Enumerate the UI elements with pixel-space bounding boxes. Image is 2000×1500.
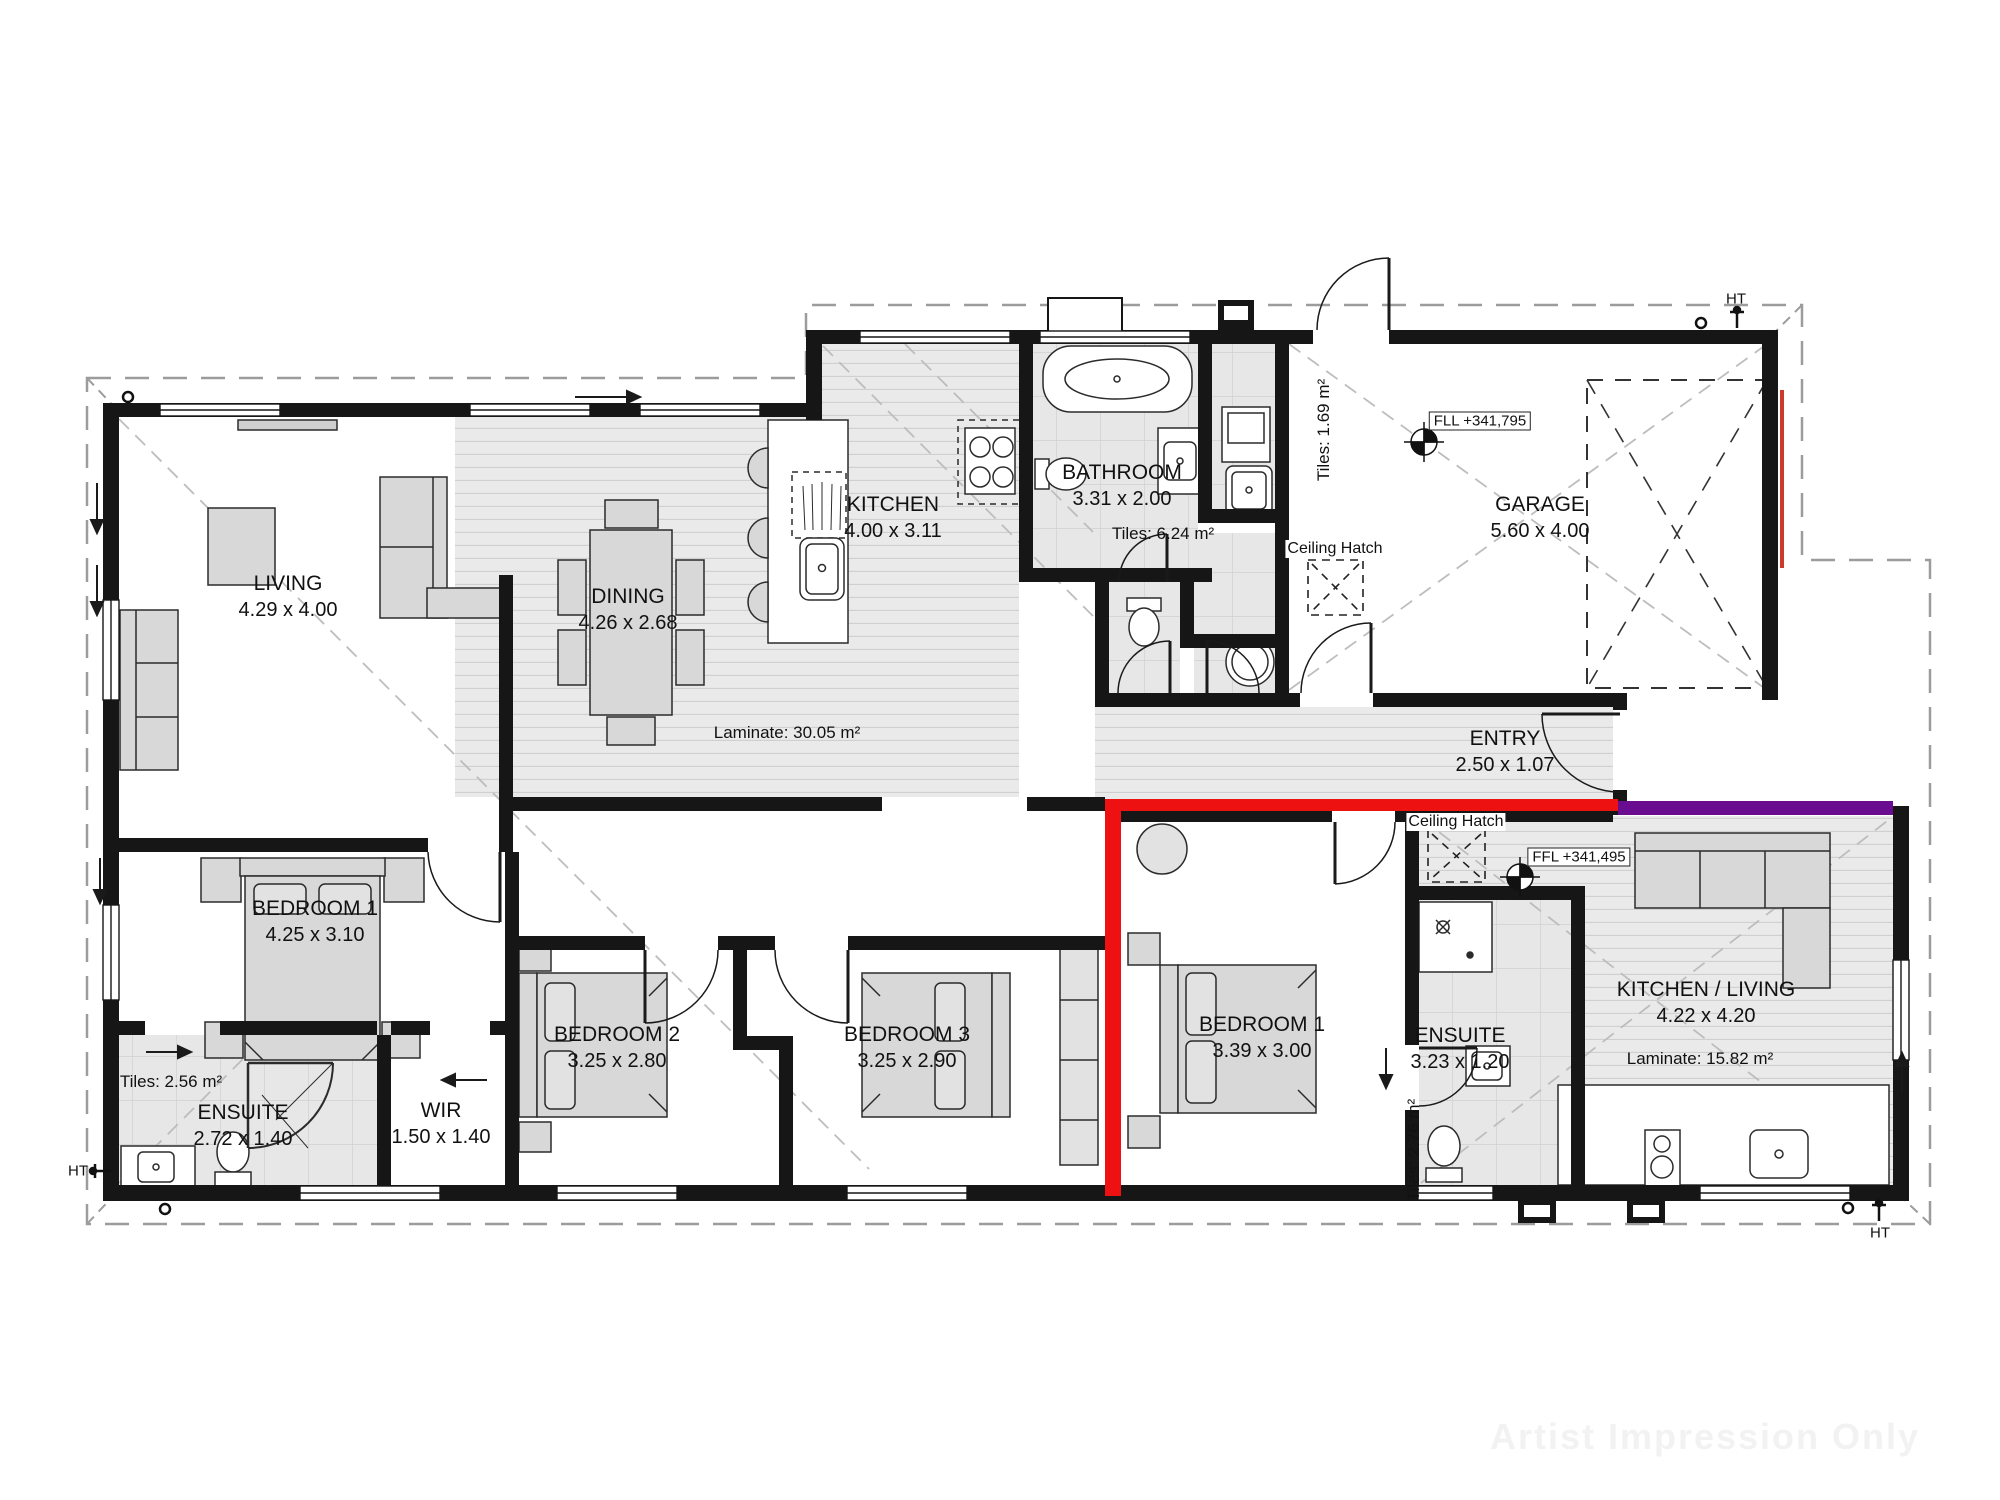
- room-name: GARAGE: [1491, 492, 1590, 518]
- window: [1893, 960, 1909, 1060]
- room-name: ENTRY: [1456, 726, 1555, 752]
- window: [160, 404, 280, 416]
- room-name: BEDROOM 2: [554, 1022, 680, 1048]
- arrow-down-ensuite-flat: [1380, 1048, 1392, 1088]
- hose-tap-icon: [1730, 307, 1744, 328]
- room-label-bedroom1-flat: BEDROOM 1 3.39 x 3.00: [1199, 1012, 1325, 1064]
- door-bedroom3: [775, 950, 848, 1023]
- room-name: KITCHEN / LIVING: [1617, 977, 1796, 1003]
- room-name: BEDROOM 3: [844, 1022, 970, 1048]
- room-dims: 4.25 x 3.10: [252, 922, 378, 948]
- ceiling-hatch-garage: [1308, 560, 1363, 615]
- bath-nook-cabinet: [1048, 298, 1122, 332]
- room-dims: 3.23 x 1.20: [1411, 1049, 1510, 1075]
- window: [470, 404, 590, 416]
- room-name: ENSUITE: [194, 1100, 293, 1126]
- room-label-ensuite-main: ENSUITE 2.72 x 1.40: [194, 1100, 293, 1152]
- room-label-living: LIVING 4.29 x 4.00: [239, 571, 338, 623]
- level-label-garage: FLL +341,795: [1429, 412, 1531, 431]
- arrow-left-wir: [442, 1074, 487, 1086]
- room-dims: 3.25 x 2.90: [844, 1048, 970, 1074]
- room-label-dining: DINING 4.26 x 2.68: [579, 584, 678, 636]
- area-label-tiles-ensuite-flat: Tiles: 2.76 m²: [1404, 1099, 1424, 1201]
- garage-door-strip: [1780, 390, 1784, 568]
- ceiling-hatch-label-flat: Ceiling Hatch: [1406, 813, 1505, 831]
- room-name: KITCHEN: [844, 492, 941, 518]
- room-label-garage: GARAGE 5.60 x 4.00: [1491, 492, 1590, 544]
- room-dims: 4.00 x 3.11: [844, 518, 941, 544]
- room-name: ENSUITE: [1411, 1023, 1510, 1049]
- area-label-tiles-ensuite-main: Tiles: 2.56 m²: [120, 1072, 222, 1092]
- bathtub: [1043, 346, 1192, 412]
- room-name: WIR: [392, 1098, 491, 1124]
- area-label-laminate-main: Laminate: 30.05 m²: [714, 723, 860, 743]
- watermark: Artist Impression Only: [1490, 1416, 1920, 1458]
- room-label-entry: ENTRY 2.50 x 1.07: [1456, 726, 1555, 778]
- window: [1700, 1186, 1850, 1200]
- room-dims: 4.29 x 4.00: [239, 597, 338, 623]
- window: [300, 1186, 440, 1200]
- floor-plan-drawing: [0, 0, 2000, 1500]
- room-name: BEDROOM 1: [252, 896, 378, 922]
- washing-machine: [1222, 407, 1270, 462]
- ensuite-main-vanity: [121, 1146, 195, 1188]
- room-dims: 3.31 x 2.00: [1062, 486, 1182, 512]
- floor-plan-canvas: LIVING 4.29 x 4.00 DINING 4.26 x 2.68 KI…: [0, 0, 2000, 1500]
- door-bedroom1-main: [428, 852, 500, 922]
- buffet-cabinet: [427, 588, 503, 618]
- room-name: LIVING: [239, 571, 338, 597]
- wc-toilet: [1127, 598, 1161, 646]
- window: [847, 1186, 967, 1200]
- room-label-kitchen-living-flat: KITCHEN / LIVING 4.22 x 4.20: [1617, 977, 1796, 1029]
- room-label-bathroom: BATHROOM 3.31 x 2.00: [1062, 460, 1182, 512]
- room-name: BEDROOM 1: [1199, 1012, 1325, 1038]
- window: [860, 331, 1010, 343]
- area-label-tiles-bathroom: Tiles: 6.24 m²: [1112, 524, 1214, 544]
- room-label-ensuite-flat: ENSUITE 3.23 x 1.20: [1411, 1023, 1510, 1075]
- window: [1040, 331, 1190, 343]
- party-wall-purple: [1618, 801, 1893, 815]
- window: [640, 404, 760, 416]
- room-dims: 4.22 x 4.20: [1617, 1003, 1796, 1029]
- door-external-rear: [1317, 258, 1389, 330]
- door-garage: [1301, 623, 1371, 693]
- arrow-right-top: [575, 391, 640, 403]
- room-dims: 5.60 x 4.00: [1491, 518, 1590, 544]
- room-dims: 2.50 x 1.07: [1456, 752, 1555, 778]
- window: [557, 1186, 677, 1200]
- level-label-flat: FFL +341,495: [1527, 848, 1630, 867]
- room-dims: 4.26 x 2.68: [579, 610, 678, 636]
- door-opening: [1313, 330, 1389, 344]
- hose-tap-icon: [1872, 1200, 1886, 1221]
- arrow-down-left-2: [91, 565, 103, 615]
- room-dims: 2.72 x 1.40: [194, 1126, 293, 1152]
- room-dims: 3.39 x 3.00: [1199, 1038, 1325, 1064]
- room-dims: 1.50 x 1.40: [392, 1124, 491, 1150]
- bed3-robe: [1060, 941, 1098, 1165]
- kitchen-island: [748, 420, 848, 643]
- sofa-left: [120, 610, 178, 770]
- ensuite-flat-toilet: [1426, 1126, 1462, 1182]
- window: [103, 600, 119, 700]
- ceiling-hatch-label-garage: Ceiling Hatch: [1285, 540, 1384, 558]
- room-name: BATHROOM: [1062, 460, 1182, 486]
- cooktop: [958, 420, 1023, 504]
- flat-kitchen-bench: [1558, 1085, 1889, 1188]
- room-name: DINING: [579, 584, 678, 610]
- window: [1418, 1186, 1493, 1200]
- laundry-tub: [1226, 466, 1272, 515]
- bed-flat-1: [1128, 824, 1316, 1148]
- room-label-wir: WIR 1.50 x 1.40: [392, 1098, 491, 1150]
- ht-label-top: HT: [1726, 291, 1746, 308]
- room-label-bedroom3: BEDROOM 3 3.25 x 2.90: [844, 1022, 970, 1074]
- room-dims: 3.25 x 2.80: [554, 1048, 680, 1074]
- room-label-bedroom1-main: BEDROOM 1 4.25 x 3.10: [252, 896, 378, 948]
- area-label-tiles-laundry: Tiles: 1.69 m²: [1314, 379, 1334, 481]
- room-label-kitchen: KITCHEN 4.00 x 3.11: [844, 492, 941, 544]
- room-label-bedroom2: BEDROOM 2 3.25 x 2.80: [554, 1022, 680, 1074]
- ht-label-left: HT: [68, 1163, 88, 1180]
- arrow-down-left-1: [91, 483, 103, 533]
- garage-car-space: [1587, 380, 1767, 688]
- door-bedroom1-flat: [1335, 822, 1395, 884]
- ensuite-flat-shower: [1419, 902, 1492, 972]
- area-label-laminate-flat: Laminate: 15.82 m²: [1627, 1049, 1773, 1069]
- door-opening: [1613, 710, 1627, 790]
- tv-unit: [238, 420, 337, 430]
- window: [103, 905, 119, 1000]
- ht-label-bottom: HT: [1870, 1225, 1890, 1242]
